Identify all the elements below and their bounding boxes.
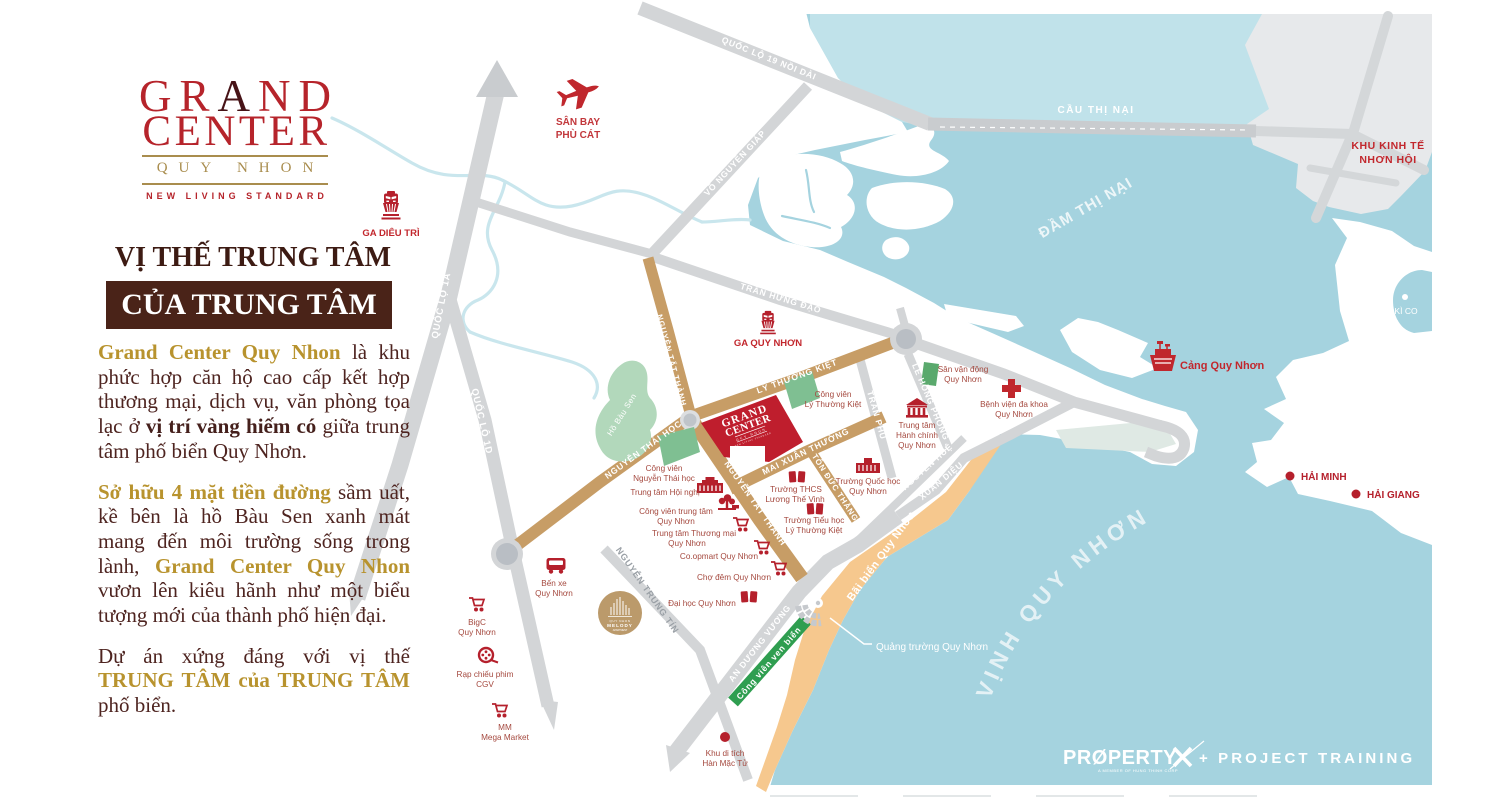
svg-text:Quy Nhơn: Quy Nhơn — [668, 539, 706, 548]
svg-text:HẢI GIANG: HẢI GIANG — [1367, 488, 1420, 501]
svg-text:Rạp chiếu phim: Rạp chiếu phim — [457, 670, 514, 679]
svg-text:PRØPERTY: PRØPERTY — [1063, 747, 1177, 769]
svg-text:Bến xe: Bến xe — [541, 579, 567, 588]
svg-text:Bệnh viện đa khoa: Bệnh viện đa khoa — [980, 400, 1048, 409]
svg-text:Quy Nhơn: Quy Nhơn — [898, 441, 936, 450]
svg-text:Sân vận động: Sân vận động — [938, 365, 989, 374]
svg-text:Quảng trường Quy Nhơn: Quảng trường Quy Nhơn — [876, 642, 988, 653]
svg-text:SÂN BAY: SÂN BAY — [556, 115, 600, 128]
svg-text:A MEMBER OF HUNG THINH CORP: A MEMBER OF HUNG THINH CORP — [1098, 768, 1178, 773]
svg-text:NHƠN HỘI: NHƠN HỘI — [1359, 153, 1416, 166]
svg-text:Quy Nhơn: Quy Nhơn — [944, 375, 982, 384]
svg-text:Quy Nhơn: Quy Nhơn — [458, 628, 496, 637]
svg-text:Lương Thế Vinh: Lương Thế Vinh — [765, 495, 825, 504]
svg-text:Hành chính: Hành chính — [896, 431, 938, 440]
svg-text:Quy Nhơn: Quy Nhơn — [657, 517, 695, 526]
svg-text:Trường THCS: Trường THCS — [770, 485, 822, 494]
svg-text:+ PROJECT TRAINING: + PROJECT TRAINING — [1199, 750, 1415, 767]
svg-text:Trường Quốc học: Trường Quốc học — [836, 477, 901, 486]
svg-text:CGV: CGV — [476, 680, 494, 689]
svg-text:Hàn Mặc Tử: Hàn Mặc Tử — [702, 759, 748, 768]
svg-text:Mega Market: Mega Market — [481, 733, 530, 742]
svg-text:Đại học Quy Nhơn: Đại học Quy Nhơn — [668, 599, 736, 608]
svg-text:KÌ CO: KÌ CO — [1394, 306, 1418, 316]
svg-text:Công viên: Công viên — [815, 390, 852, 399]
svg-text:Lý Thường Kiệt: Lý Thường Kiệt — [786, 526, 843, 535]
svg-text:Công viên trung tâm: Công viên trung tâm — [639, 507, 713, 516]
svg-text:HẢI MINH: HẢI MINH — [1301, 470, 1347, 483]
svg-text:Co.opmart Quy Nhơn: Co.opmart Quy Nhơn — [680, 552, 759, 561]
svg-text:BigC: BigC — [468, 618, 486, 627]
svg-text:Khu di tích: Khu di tích — [706, 749, 745, 758]
svg-text:Cảng Quy Nhơn: Cảng Quy Nhơn — [1180, 360, 1264, 372]
svg-text:Lý Thường Kiệt: Lý Thường Kiệt — [805, 400, 862, 409]
svg-text:Trung tâm Thương mại: Trung tâm Thương mại — [652, 529, 736, 538]
svg-text:GA QUY NHƠN: GA QUY NHƠN — [734, 338, 802, 349]
svg-text:MELODY: MELODY — [607, 623, 633, 628]
svg-text:CẦU THỊ NẠI: CẦU THỊ NẠI — [1057, 103, 1134, 116]
svg-text:Quy Nhơn: Quy Nhơn — [849, 487, 887, 496]
svg-text:Trung tâm Hội nghị: Trung tâm Hội nghị — [630, 488, 700, 497]
svg-text:PHÙ CÁT: PHÙ CÁT — [556, 128, 600, 141]
svg-text:Quy Nhơn: Quy Nhơn — [995, 410, 1033, 419]
svg-text:Trường Tiểu học: Trường Tiểu học — [784, 515, 845, 525]
svg-text:Nguyễn Thái học: Nguyễn Thái học — [633, 473, 695, 483]
svg-text:KHU KINH TẾ: KHU KINH TẾ — [1351, 139, 1424, 152]
svg-text:Quy Nhơn: Quy Nhơn — [535, 589, 573, 598]
svg-text:Công viên: Công viên — [646, 464, 683, 473]
svg-text:MM: MM — [498, 723, 512, 732]
svg-text:Trung tâm: Trung tâm — [898, 421, 935, 430]
svg-text:APARTMENT: APARTMENT — [613, 629, 628, 632]
svg-text:Chợ đêm Quy Nhơn: Chợ đêm Quy Nhơn — [697, 573, 771, 582]
